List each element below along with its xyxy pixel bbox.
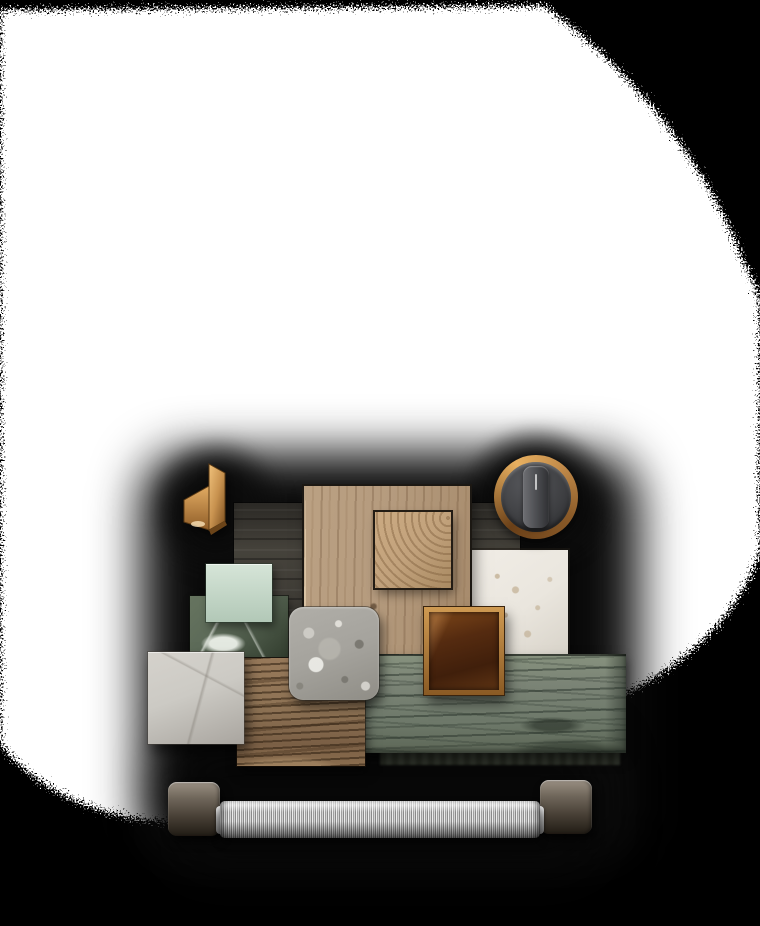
knob-grip: [523, 466, 549, 528]
brass-blade-face: [209, 464, 225, 530]
handle-end-cap-left: [168, 782, 220, 836]
oak-endgrain-block: [375, 512, 451, 588]
handle-end-cap-right: [540, 780, 592, 834]
copper-tile: [424, 607, 504, 695]
metal-knob: [494, 455, 578, 539]
knob-indicator-mark: [535, 474, 537, 490]
brass-highlight: [191, 521, 205, 527]
mint-glass-tile: [206, 564, 272, 622]
brass-bracket: [178, 458, 242, 536]
plank-milled-side: [380, 751, 620, 765]
terrazzo-tile: [289, 607, 379, 700]
copper-tile-glass: [429, 612, 499, 690]
handle-knurled-bar: [220, 801, 540, 838]
pull-handle: [168, 780, 592, 840]
grey-marble-tile: [148, 652, 244, 744]
moodboard-scene: [0, 0, 760, 926]
